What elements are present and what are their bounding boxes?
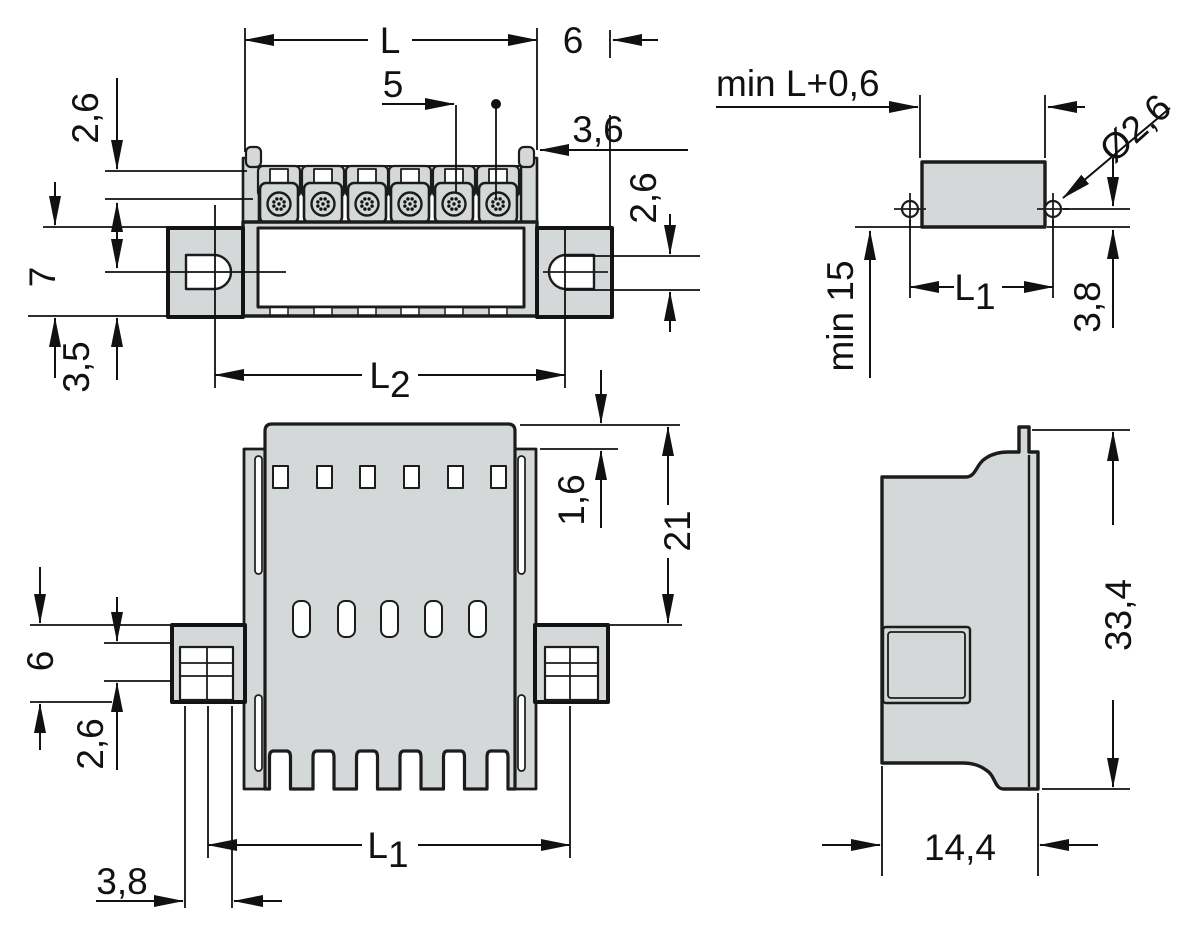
dim-front-clamp-height: 2,6 (65, 78, 117, 268)
dim-label: 6 (20, 651, 61, 672)
screw-terminal (433, 166, 475, 223)
dim-label: min L+0,6 (716, 63, 880, 104)
dim-bottom-pin-spacing: L1 (208, 824, 570, 875)
dim-pcb-clearance: min 15 (820, 231, 870, 378)
dim-label: Ø2,6 (1092, 86, 1179, 170)
side-profile (882, 427, 1038, 789)
bottom-view (172, 424, 608, 789)
dim-front-slot-width: 2,6 (623, 172, 670, 332)
dimension-drawing: L 5 6 3,6 2,6 7 3, (0, 0, 1200, 935)
dim-bottom-pin-height: 2,6 (70, 597, 117, 770)
pcb-outline (922, 162, 1045, 227)
dim-pcb-hole-spacing: L1 (910, 266, 1053, 317)
dim-label: 2,6 (623, 172, 664, 223)
dim-label: 3,8 (96, 861, 147, 902)
dim-pcb-min-length: min L+0,6 (716, 63, 1085, 107)
screw-terminal (389, 166, 431, 223)
screw-terminal (477, 166, 519, 223)
dim-label: 5 (383, 64, 404, 105)
front-cavity (258, 228, 524, 307)
screw-terminal (346, 166, 388, 223)
dim-label-sub: 1 (975, 276, 996, 317)
dim-label: 2,6 (70, 718, 111, 769)
dim-pcb-pin-offset: 3,8 (1067, 158, 1113, 333)
dim-bottom-pin-offset: 3,8 (96, 861, 282, 902)
dim-label: min 15 (820, 260, 861, 371)
bottom-left-rail (244, 449, 265, 789)
dim-side-depth: 14,4 (822, 827, 1098, 868)
screw-terminal (302, 166, 344, 223)
dim-label: 3,8 (1067, 281, 1108, 332)
pcb-view (894, 162, 1069, 227)
dim-pcb-hole-dia: Ø2,6 (1063, 86, 1179, 198)
dim-label: 2,6 (65, 92, 106, 143)
bottom-left-flange (172, 625, 245, 702)
dim-label-sub: 1 (388, 834, 409, 875)
reference-dot (491, 99, 501, 109)
dim-front-hole-spacing: L2 (215, 354, 565, 405)
dim-front-pitch: 5 (382, 64, 454, 105)
dim-label: 3,5 (56, 341, 97, 392)
drawing-sheet: L 5 6 3,6 2,6 7 3, (0, 0, 1200, 935)
dim-label-sub: 2 (390, 364, 411, 405)
dim-bottom-flange-height: 6 (20, 567, 61, 750)
dim-label: 14,4 (924, 827, 996, 868)
dim-label: 33,4 (1098, 579, 1139, 651)
dim-front-edge-offset: 3,6 (540, 109, 688, 150)
dim-front-length: L (245, 20, 537, 61)
front-right-latch (519, 147, 534, 167)
side-view (882, 427, 1038, 789)
dim-label: 7 (22, 267, 63, 288)
dim-front-hole-offset: 3,5 (56, 318, 117, 393)
bottom-right-flange (535, 625, 608, 702)
front-view (168, 147, 612, 317)
dim-label: 6 (563, 20, 584, 61)
dim-label: L (380, 20, 401, 61)
dim-label-base: L (954, 267, 975, 308)
bottom-right-rail (515, 449, 536, 789)
dim-bottom-body-height: 21 (657, 427, 698, 623)
dim-label-base: L (369, 355, 390, 396)
dim-label: 1,6 (551, 474, 592, 525)
front-left-latch (246, 147, 261, 167)
dim-side-height: 33,4 (1098, 432, 1139, 787)
dim-label-base: L (367, 825, 388, 866)
dim-label: 3,6 (572, 109, 623, 150)
dim-label: 21 (657, 510, 698, 551)
screw-terminal (258, 166, 300, 223)
